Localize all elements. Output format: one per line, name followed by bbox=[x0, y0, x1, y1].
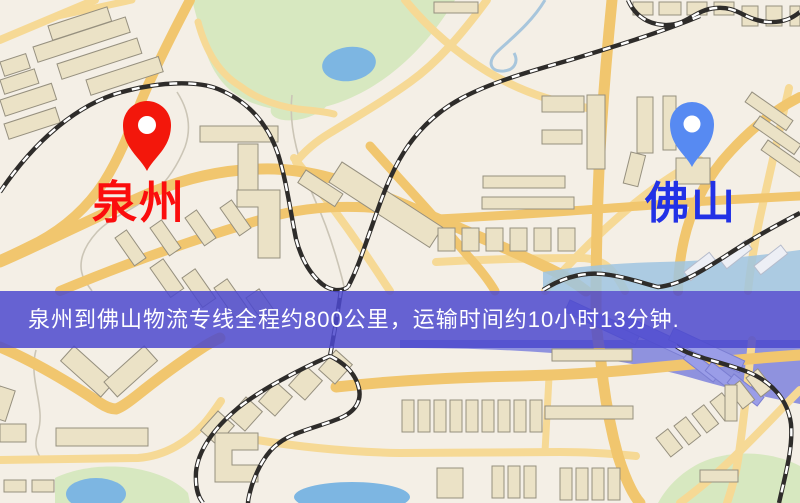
building bbox=[32, 480, 54, 492]
building bbox=[592, 468, 604, 500]
pin-hole bbox=[138, 116, 156, 134]
building bbox=[418, 400, 430, 432]
building bbox=[510, 228, 527, 251]
building bbox=[542, 96, 584, 112]
building bbox=[482, 197, 574, 209]
map-canvas: 泉州 佛山 泉州到佛山物流专线全程约800公里，运输时间约10小时13分钟. bbox=[0, 0, 800, 503]
building bbox=[437, 468, 463, 498]
building bbox=[514, 400, 526, 432]
origin-pin-icon bbox=[122, 100, 172, 171]
origin-city-label: 泉州 bbox=[92, 180, 186, 225]
building bbox=[608, 468, 620, 500]
building bbox=[462, 228, 479, 251]
pin-body bbox=[670, 102, 714, 167]
building bbox=[530, 400, 542, 432]
building bbox=[725, 385, 737, 421]
building bbox=[498, 400, 510, 432]
route-info-banner: 泉州到佛山物流专线全程约800公里，运输时间约10小时13分钟. bbox=[0, 291, 800, 348]
building bbox=[659, 2, 681, 15]
building bbox=[637, 97, 653, 153]
building bbox=[524, 466, 536, 498]
building bbox=[545, 406, 633, 419]
building bbox=[0, 424, 26, 442]
building bbox=[552, 349, 632, 361]
building bbox=[492, 466, 504, 498]
pin-body bbox=[123, 101, 171, 171]
building bbox=[402, 400, 414, 432]
building bbox=[486, 228, 503, 251]
building bbox=[483, 176, 565, 188]
building bbox=[576, 468, 588, 500]
destination-city-label: 佛山 bbox=[645, 182, 737, 226]
pin-hole bbox=[684, 116, 701, 133]
building bbox=[700, 470, 738, 482]
building bbox=[450, 400, 462, 432]
destination-pin-icon bbox=[669, 101, 715, 167]
building bbox=[434, 400, 446, 432]
building bbox=[56, 428, 148, 446]
building bbox=[4, 480, 26, 492]
building bbox=[587, 95, 605, 169]
building bbox=[560, 468, 572, 500]
building bbox=[558, 228, 575, 251]
building bbox=[534, 228, 551, 251]
building bbox=[508, 466, 520, 498]
building bbox=[466, 400, 478, 432]
building bbox=[238, 144, 258, 194]
building bbox=[438, 228, 455, 251]
building bbox=[482, 400, 494, 432]
building bbox=[434, 2, 478, 13]
basemap bbox=[0, 0, 800, 503]
building bbox=[542, 130, 582, 144]
